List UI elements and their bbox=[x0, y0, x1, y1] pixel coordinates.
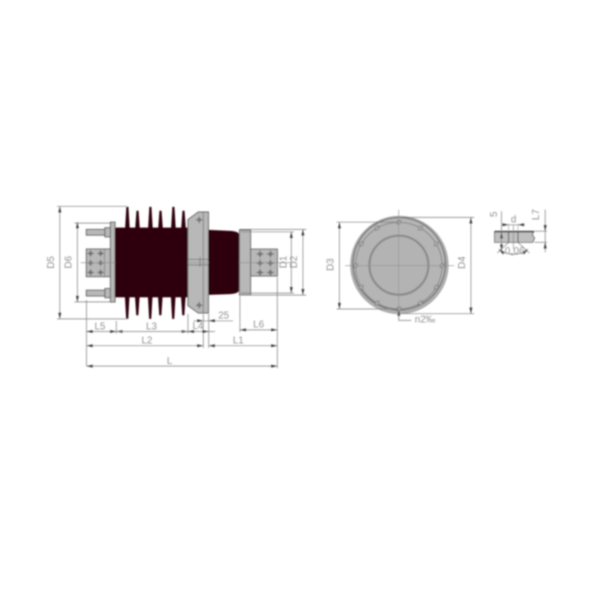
svg-text:‰: ‰ bbox=[426, 314, 436, 325]
svg-text:D5: D5 bbox=[46, 256, 57, 269]
svg-text:5: 5 bbox=[489, 211, 500, 217]
svg-text:D4: D4 bbox=[457, 256, 468, 269]
svg-text:n2: n2 bbox=[415, 314, 426, 325]
svg-text:D3: D3 bbox=[326, 258, 337, 271]
svg-text:L3: L3 bbox=[146, 321, 157, 332]
svg-text:L1: L1 bbox=[233, 336, 244, 347]
svg-text:90˚0': 90˚0' bbox=[503, 244, 525, 255]
svg-text:L7: L7 bbox=[531, 209, 542, 220]
svg-text:L6: L6 bbox=[253, 319, 264, 330]
svg-text:L4: L4 bbox=[192, 321, 203, 332]
svg-text:25: 25 bbox=[218, 311, 229, 322]
svg-text:D2: D2 bbox=[289, 256, 300, 269]
svg-text:D1: D1 bbox=[278, 256, 289, 269]
svg-text:d: d bbox=[511, 214, 516, 225]
svg-text:D6: D6 bbox=[64, 255, 75, 268]
svg-text:L5: L5 bbox=[94, 321, 105, 332]
svg-text:L2: L2 bbox=[141, 336, 152, 347]
svg-text:L: L bbox=[167, 356, 173, 367]
